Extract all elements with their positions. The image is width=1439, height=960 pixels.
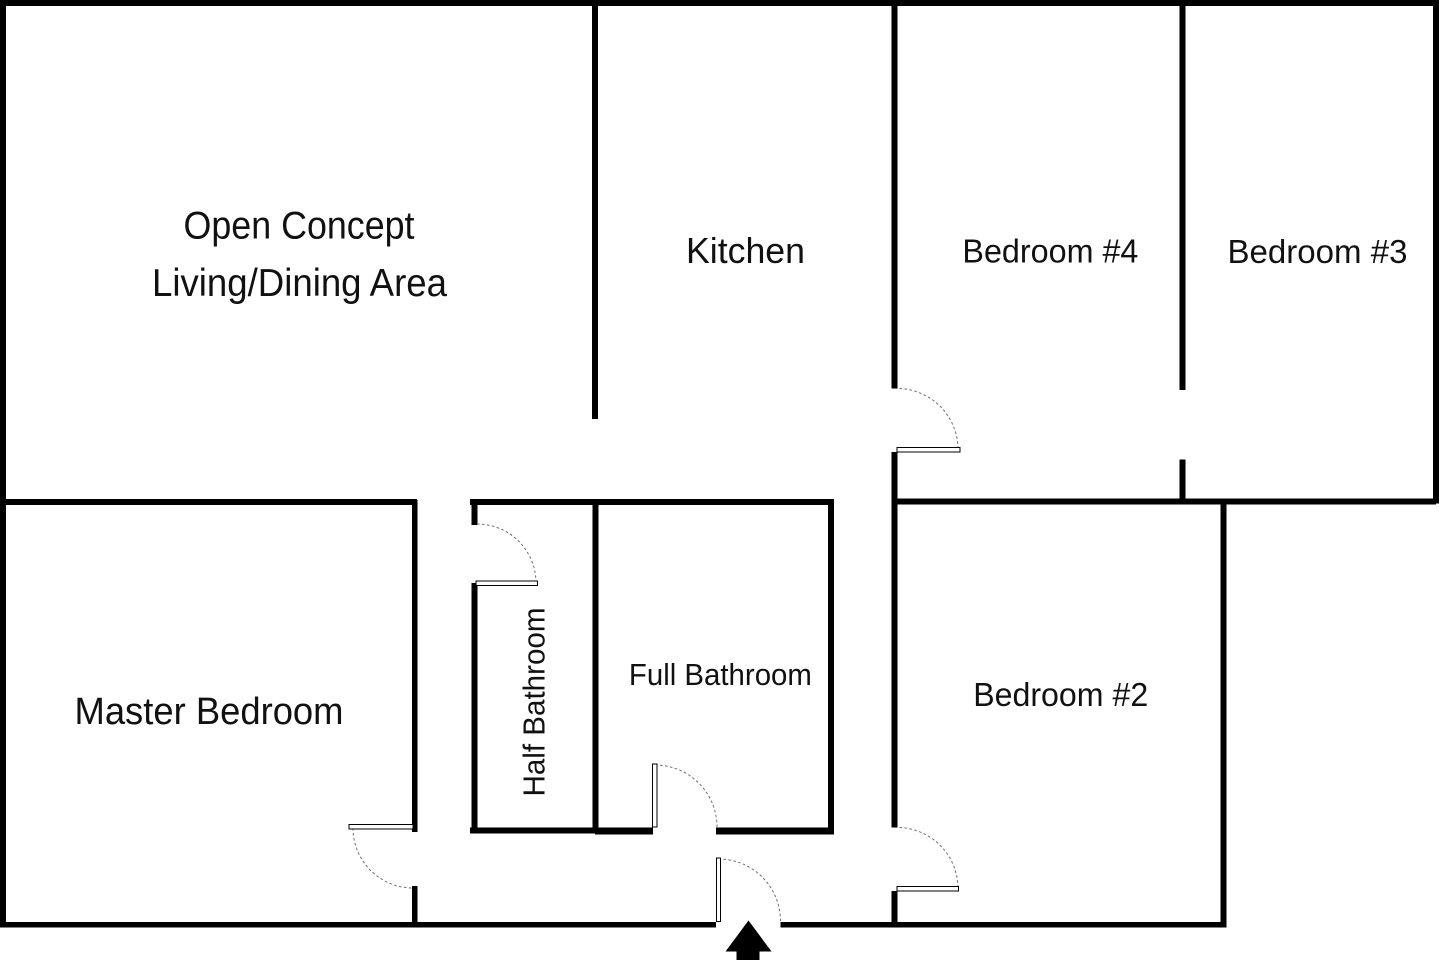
svg-text:Living/Dining Area: Living/Dining Area — [152, 262, 447, 305]
svg-text:Bedroom #3: Bedroom #3 — [1228, 233, 1408, 270]
svg-text:Bedroom #4: Bedroom #4 — [962, 233, 1138, 270]
svg-text:Kitchen: Kitchen — [686, 230, 805, 271]
svg-text:Bedroom #2: Bedroom #2 — [973, 677, 1148, 714]
svg-text:Half Bathroom: Half Bathroom — [517, 608, 552, 797]
svg-text:Full Bathroom: Full Bathroom — [629, 657, 812, 692]
svg-text:Master Bedroom: Master Bedroom — [75, 691, 344, 733]
svg-text:Open Concept: Open Concept — [184, 204, 415, 247]
